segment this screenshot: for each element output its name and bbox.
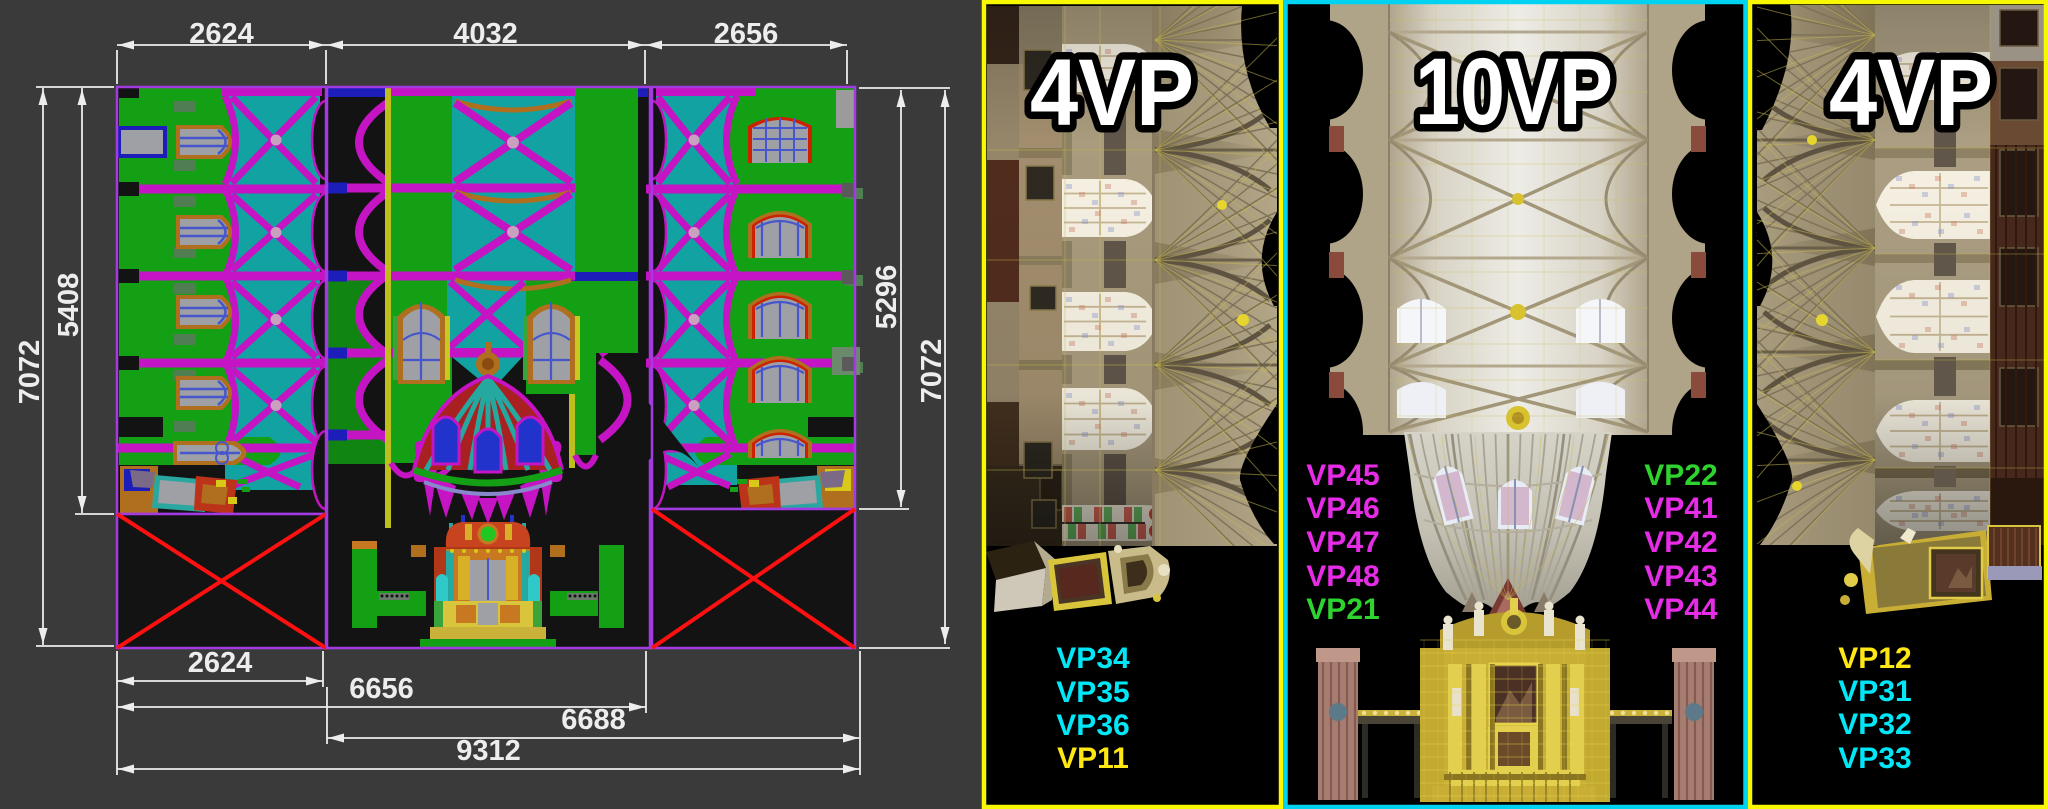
svg-text:VP45: VP45 [1306, 459, 1379, 492]
svg-text:5408: 5408 [53, 273, 85, 338]
svg-text:9312: 9312 [456, 735, 521, 767]
svg-text:10VP: 10VP [1415, 39, 1613, 145]
svg-text:VP36: VP36 [1056, 709, 1129, 742]
svg-text:VP44: VP44 [1644, 593, 1718, 626]
svg-text:5296: 5296 [871, 265, 903, 330]
svg-text:VP46: VP46 [1306, 492, 1379, 525]
svg-text:VP11: VP11 [1057, 742, 1129, 775]
svg-text:VP47: VP47 [1306, 526, 1379, 559]
svg-text:VP34: VP34 [1056, 642, 1130, 675]
svg-text:VP21: VP21 [1306, 593, 1379, 626]
svg-text:6656: 6656 [349, 673, 414, 705]
svg-text:VP12: VP12 [1838, 642, 1911, 675]
svg-text:2624: 2624 [188, 647, 253, 679]
svg-text:7072: 7072 [916, 339, 948, 404]
svg-text:VP32: VP32 [1838, 708, 1911, 741]
svg-text:VP35: VP35 [1056, 676, 1129, 709]
svg-text:VP31: VP31 [1838, 675, 1911, 708]
svg-text:VP33: VP33 [1838, 742, 1911, 775]
svg-text:4VP: 4VP [1030, 40, 1194, 146]
svg-text:4032: 4032 [453, 18, 518, 50]
svg-text:VP42: VP42 [1644, 526, 1717, 559]
svg-text:4VP: 4VP [1829, 40, 1993, 146]
svg-text:6688: 6688 [561, 704, 626, 736]
svg-text:7072: 7072 [14, 340, 46, 405]
svg-text:VP41: VP41 [1644, 492, 1717, 525]
svg-text:2656: 2656 [714, 18, 779, 50]
svg-text:VP22: VP22 [1644, 459, 1717, 492]
svg-text:2624: 2624 [189, 18, 254, 50]
svg-text:VP43: VP43 [1644, 560, 1717, 593]
svg-text:VP48: VP48 [1306, 560, 1379, 593]
